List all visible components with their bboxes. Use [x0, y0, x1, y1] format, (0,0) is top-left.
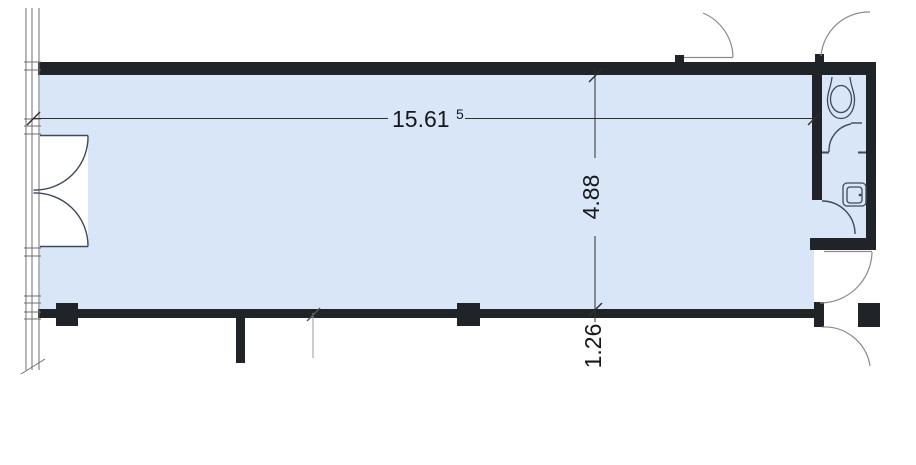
- floor-plan-page: 15.61 5 4.88 1.26: [0, 0, 916, 465]
- bathroom-fill: [822, 75, 866, 238]
- column: [457, 303, 480, 326]
- width-dimension-value: 15.61: [392, 106, 450, 132]
- top-exterior-door-arc: [703, 13, 733, 57]
- partition-wall-stub: [236, 318, 245, 363]
- floor-plan-canvas: 15.61 5 4.88 1.26: [0, 0, 916, 465]
- double-door-bottom-swing-arc: [34, 193, 89, 247]
- depth-dimension-label: 4.88: [578, 175, 604, 220]
- top-right-exterior-door-arc: [821, 12, 870, 56]
- bottom-right-door-arc: [820, 252, 872, 303]
- bathroom-bottom-wall: [810, 238, 876, 250]
- bottom-right-lower-door-arc: [822, 327, 870, 366]
- top-wall: [38, 62, 876, 75]
- bathroom-right-wall: [866, 75, 876, 250]
- double-door-top-swing-arc: [34, 136, 89, 191]
- width-dimension-label: 15.61 5: [392, 106, 464, 132]
- offset-dimension-label: 1.26: [580, 324, 606, 369]
- door-jamb-post: [815, 54, 824, 63]
- column: [56, 303, 78, 326]
- bottom-wall-end-cap: [814, 302, 824, 327]
- bathroom-left-wall: [812, 75, 822, 200]
- door-jamb-post: [675, 55, 684, 63]
- width-dimension-superscript: 5: [456, 106, 464, 122]
- window-end-break-mark: [21, 359, 45, 374]
- bottom-wall: [38, 309, 818, 318]
- column: [858, 303, 880, 327]
- washbasin-drain-dot: [859, 194, 862, 197]
